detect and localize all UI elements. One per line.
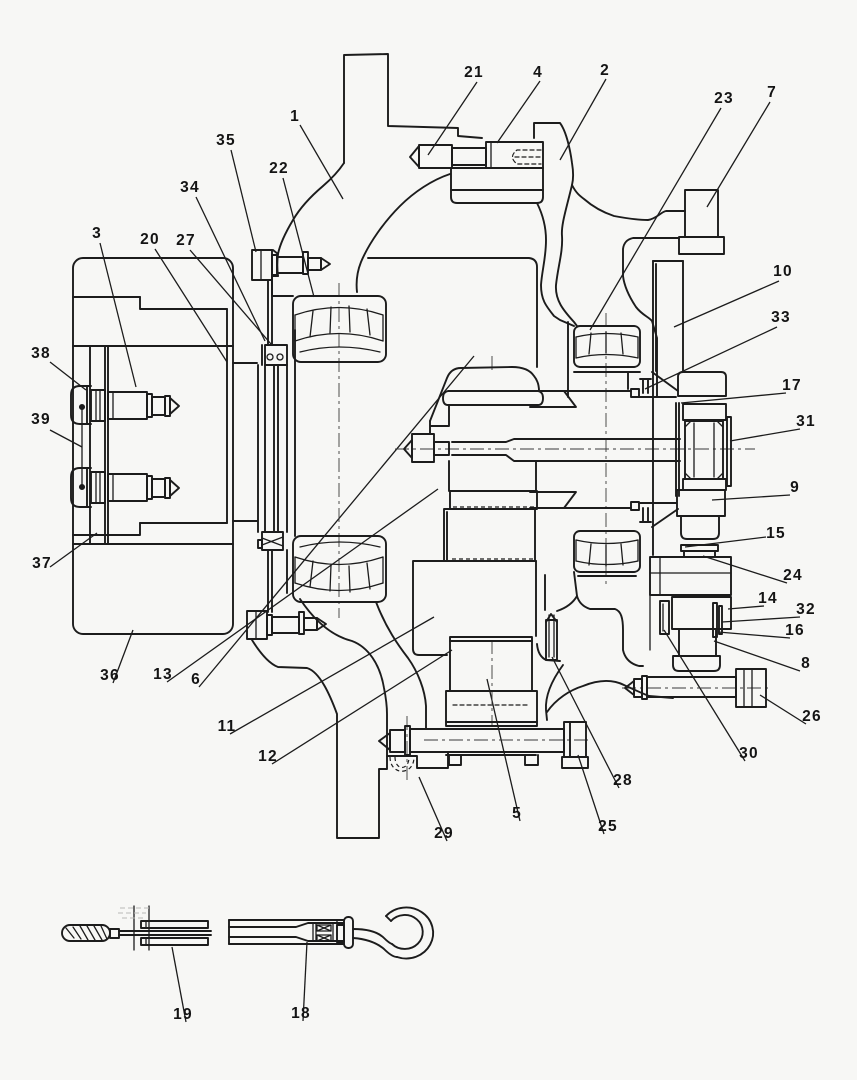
svg-text:18: 18 [291,1005,311,1022]
svg-text:29: 29 [434,825,454,842]
svg-text:35: 35 [216,132,236,149]
svg-text:38: 38 [31,345,51,362]
svg-text:23: 23 [714,90,734,107]
svg-text:1: 1 [290,108,300,125]
svg-text:20: 20 [140,231,160,248]
svg-text:37: 37 [32,555,52,572]
svg-text:32: 32 [796,601,816,618]
svg-text:21: 21 [464,64,484,81]
svg-text:6: 6 [191,671,201,688]
svg-text:8: 8 [801,655,811,672]
svg-text:34: 34 [180,179,200,196]
svg-text:17: 17 [782,377,802,394]
svg-text:4: 4 [533,64,543,81]
svg-text:16: 16 [785,622,805,639]
svg-text:9: 9 [790,479,800,496]
svg-text:30: 30 [739,745,759,762]
svg-text:2: 2 [600,62,610,79]
svg-text:31: 31 [796,413,816,430]
svg-text:15: 15 [766,525,786,542]
svg-text:33: 33 [771,309,791,326]
svg-text:25: 25 [598,818,618,835]
svg-text:36: 36 [100,667,120,684]
svg-text:12: 12 [258,748,278,765]
svg-text:39: 39 [31,411,51,428]
svg-text:5: 5 [512,805,522,822]
svg-text:3: 3 [92,225,102,242]
svg-text:19: 19 [173,1006,193,1023]
svg-text:27: 27 [176,232,196,249]
svg-text:14: 14 [758,590,778,607]
svg-text:28: 28 [613,772,633,789]
svg-text:10: 10 [773,263,793,280]
svg-text:13: 13 [153,666,173,683]
svg-text:22: 22 [269,160,289,177]
svg-text:24: 24 [783,567,803,584]
svg-text:7: 7 [767,84,777,101]
svg-text:11: 11 [218,718,237,735]
svg-text:26: 26 [802,708,822,725]
